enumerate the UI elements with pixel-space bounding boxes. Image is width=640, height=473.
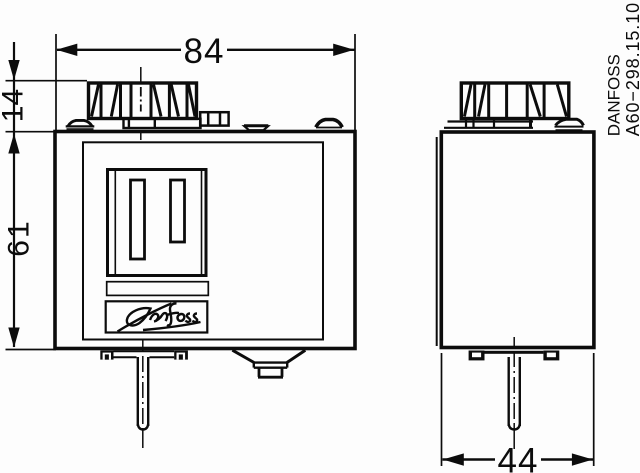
svg-text:A60−298.15.10: A60−298.15.10 bbox=[623, 2, 640, 136]
svg-text:61: 61 bbox=[3, 219, 36, 256]
svg-text:DANFOSS: DANFOSS bbox=[605, 54, 624, 136]
svg-text:84: 84 bbox=[184, 32, 225, 71]
svg-text:44: 44 bbox=[498, 442, 539, 473]
svg-text:14: 14 bbox=[0, 89, 30, 122]
